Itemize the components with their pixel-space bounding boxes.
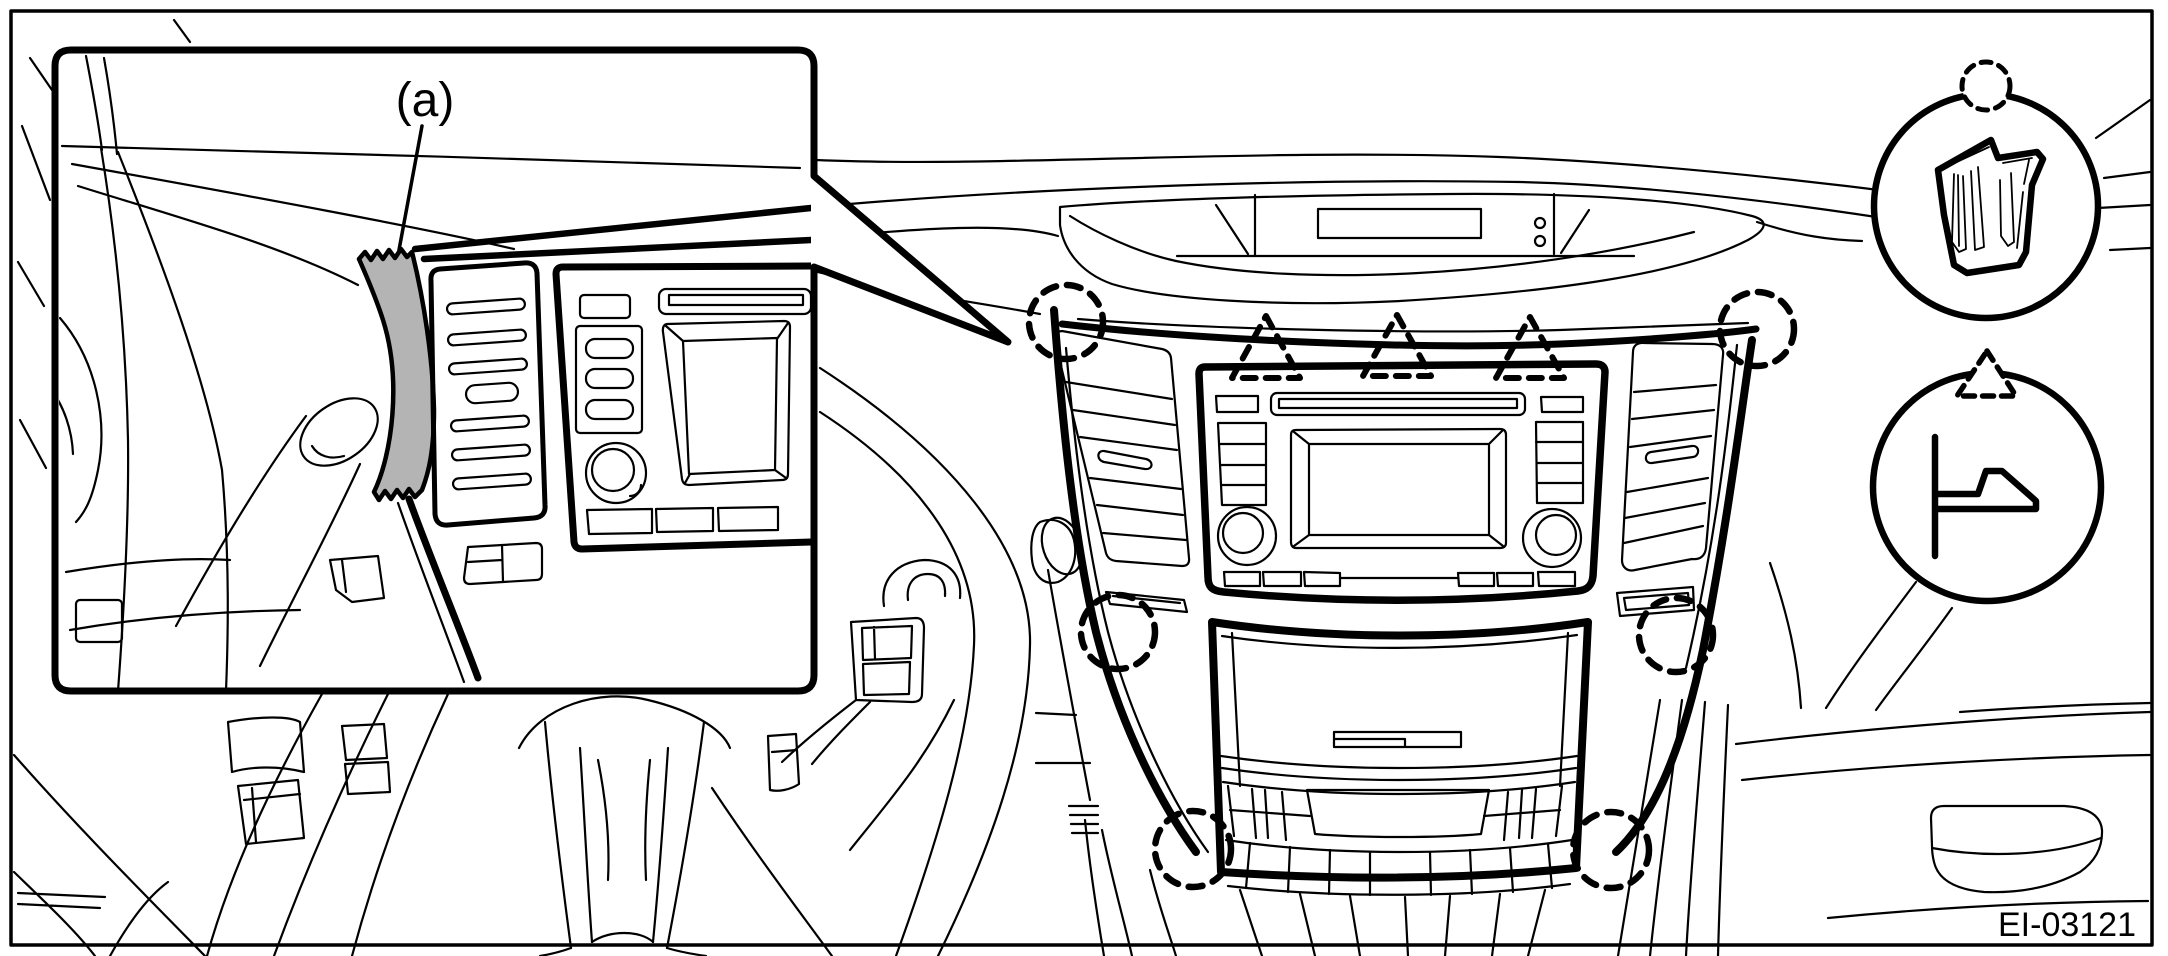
svg-text:(a): (a)	[396, 74, 455, 127]
svg-text:EI-03121: EI-03121	[1998, 906, 2136, 944]
